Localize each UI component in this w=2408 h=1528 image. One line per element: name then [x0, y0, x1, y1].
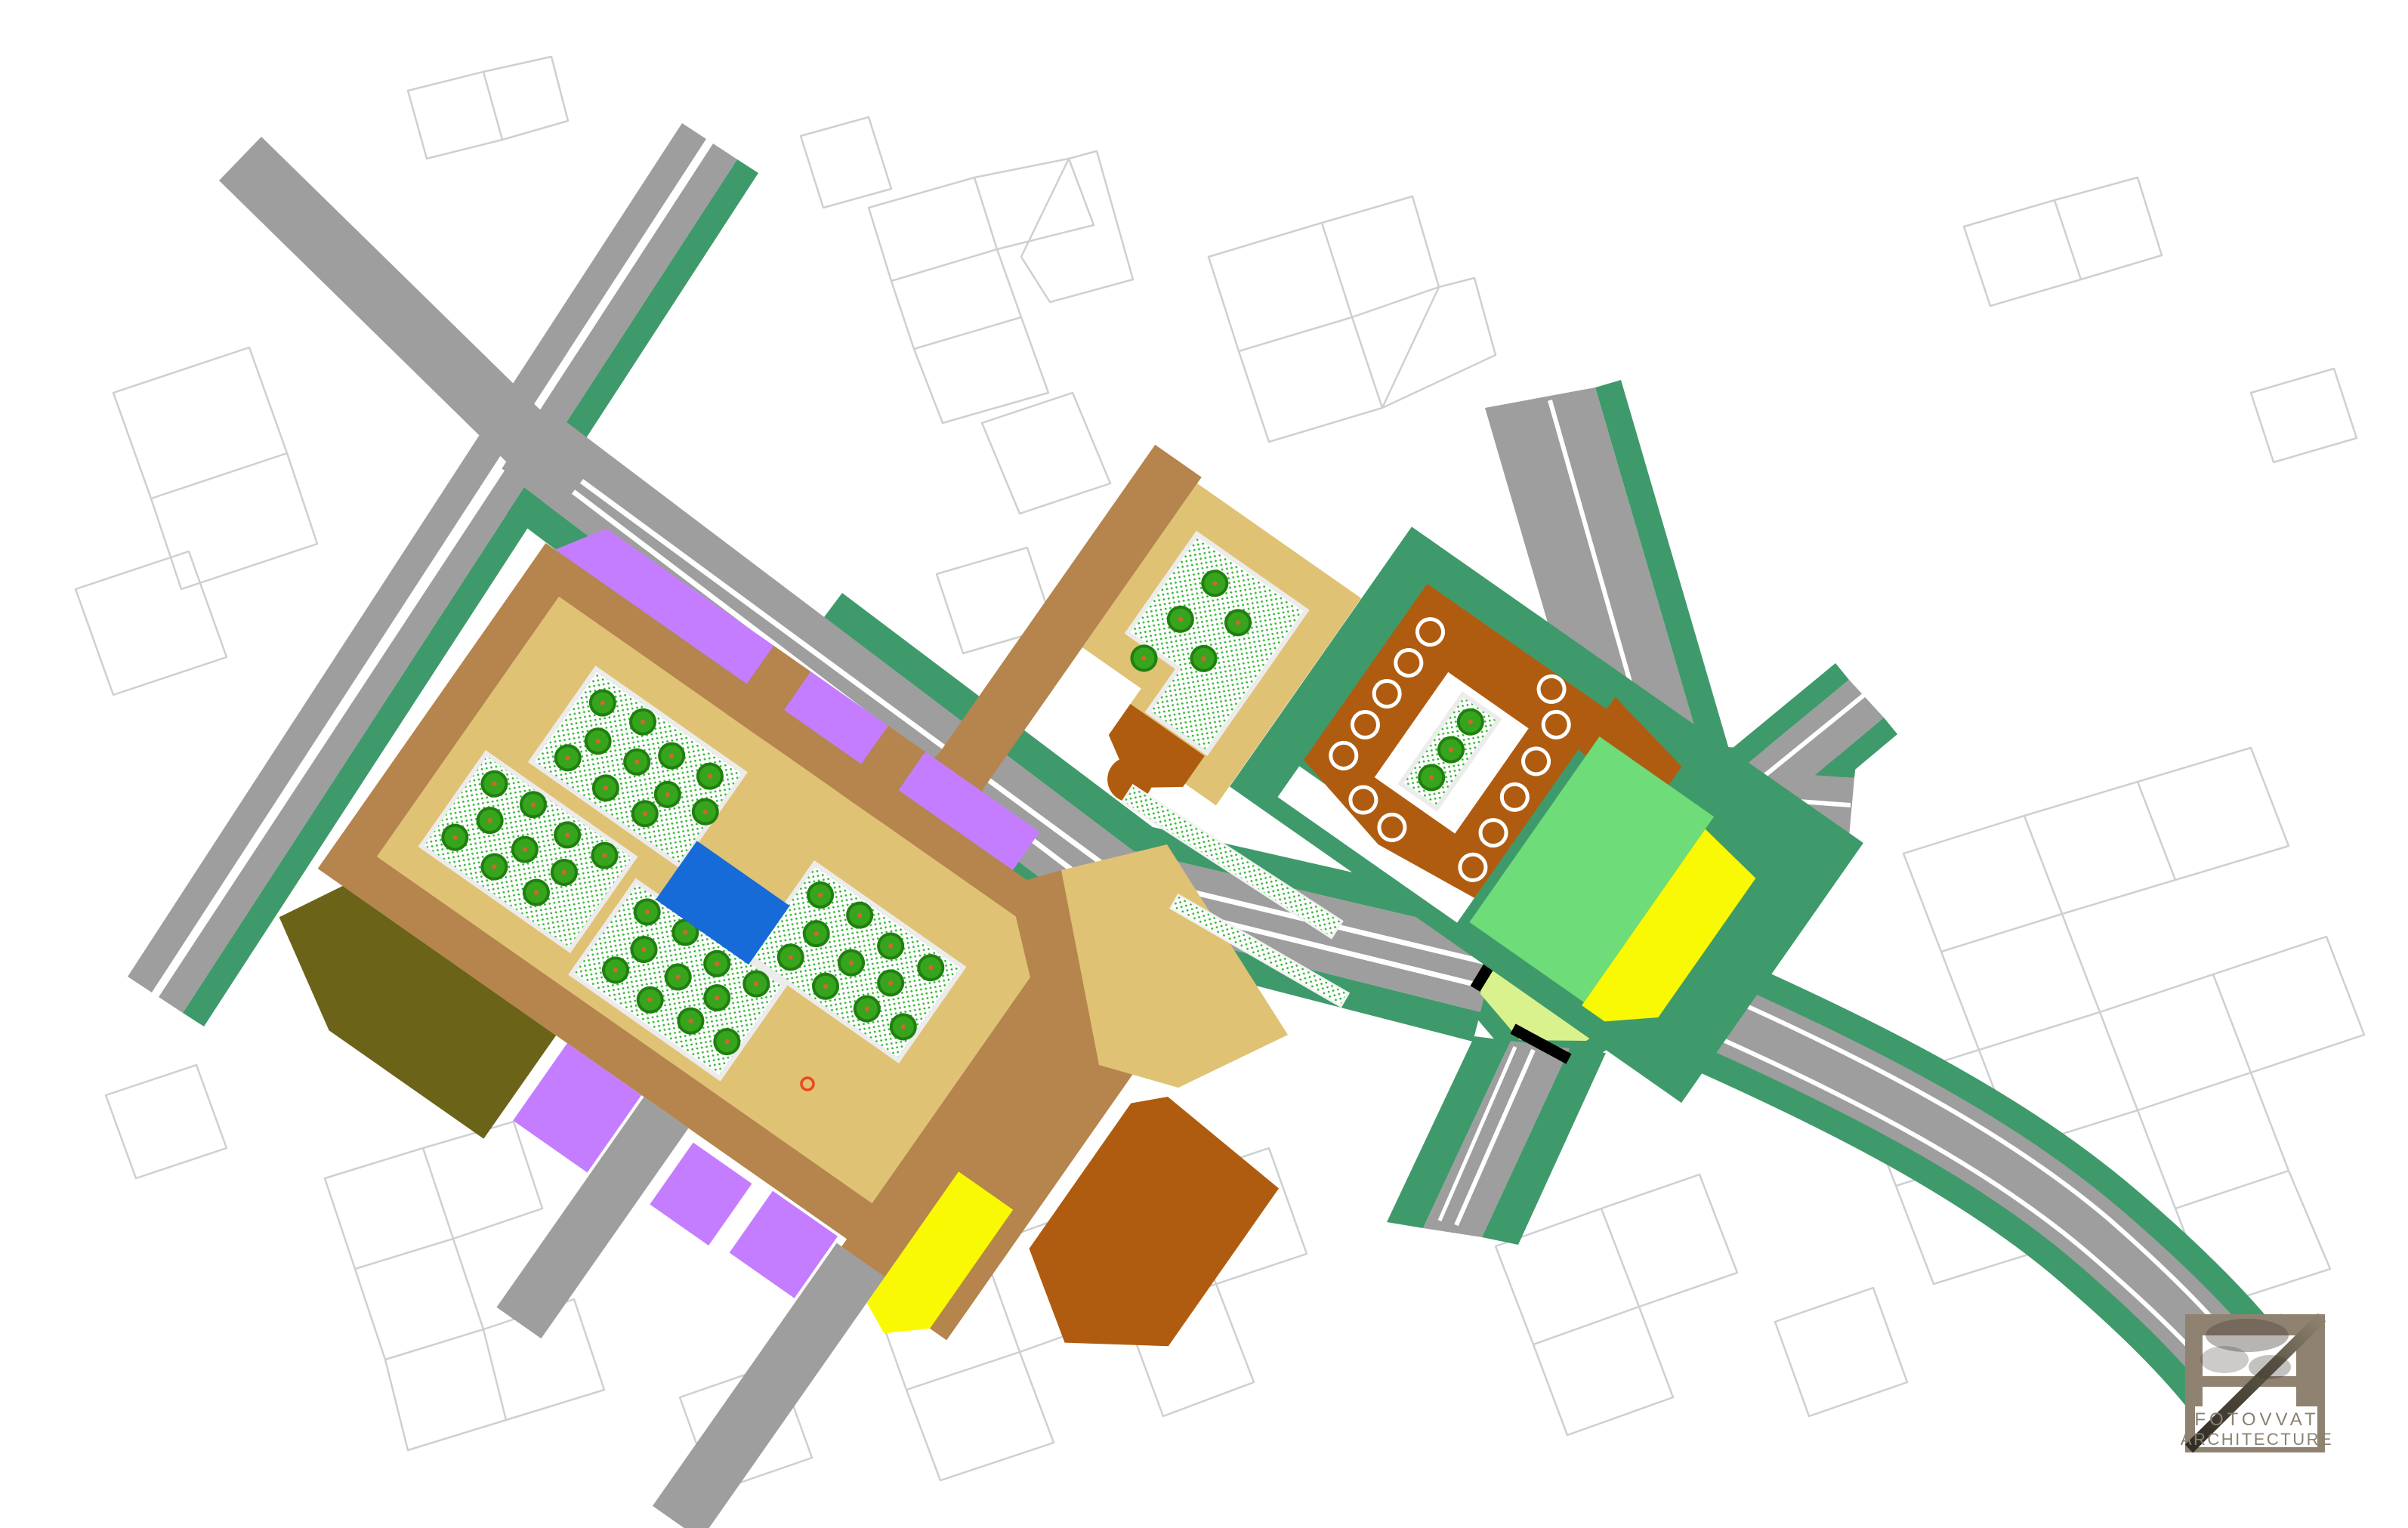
logo: FOTOVVAT ARCHITECTURE — [2181, 1314, 2333, 1452]
site-plan-page: FOTOVVAT ARCHITECTURE — [0, 0, 2408, 1528]
logo-texture-3 — [2249, 1355, 2291, 1379]
logo-texture-2 — [2200, 1346, 2249, 1373]
logo-line2: ARCHITECTURE — [2181, 1430, 2333, 1449]
logo-line1: FOTOVVAT — [2194, 1409, 2319, 1430]
site-plan-svg: FOTOVVAT ARCHITECTURE — [0, 0, 2408, 1528]
